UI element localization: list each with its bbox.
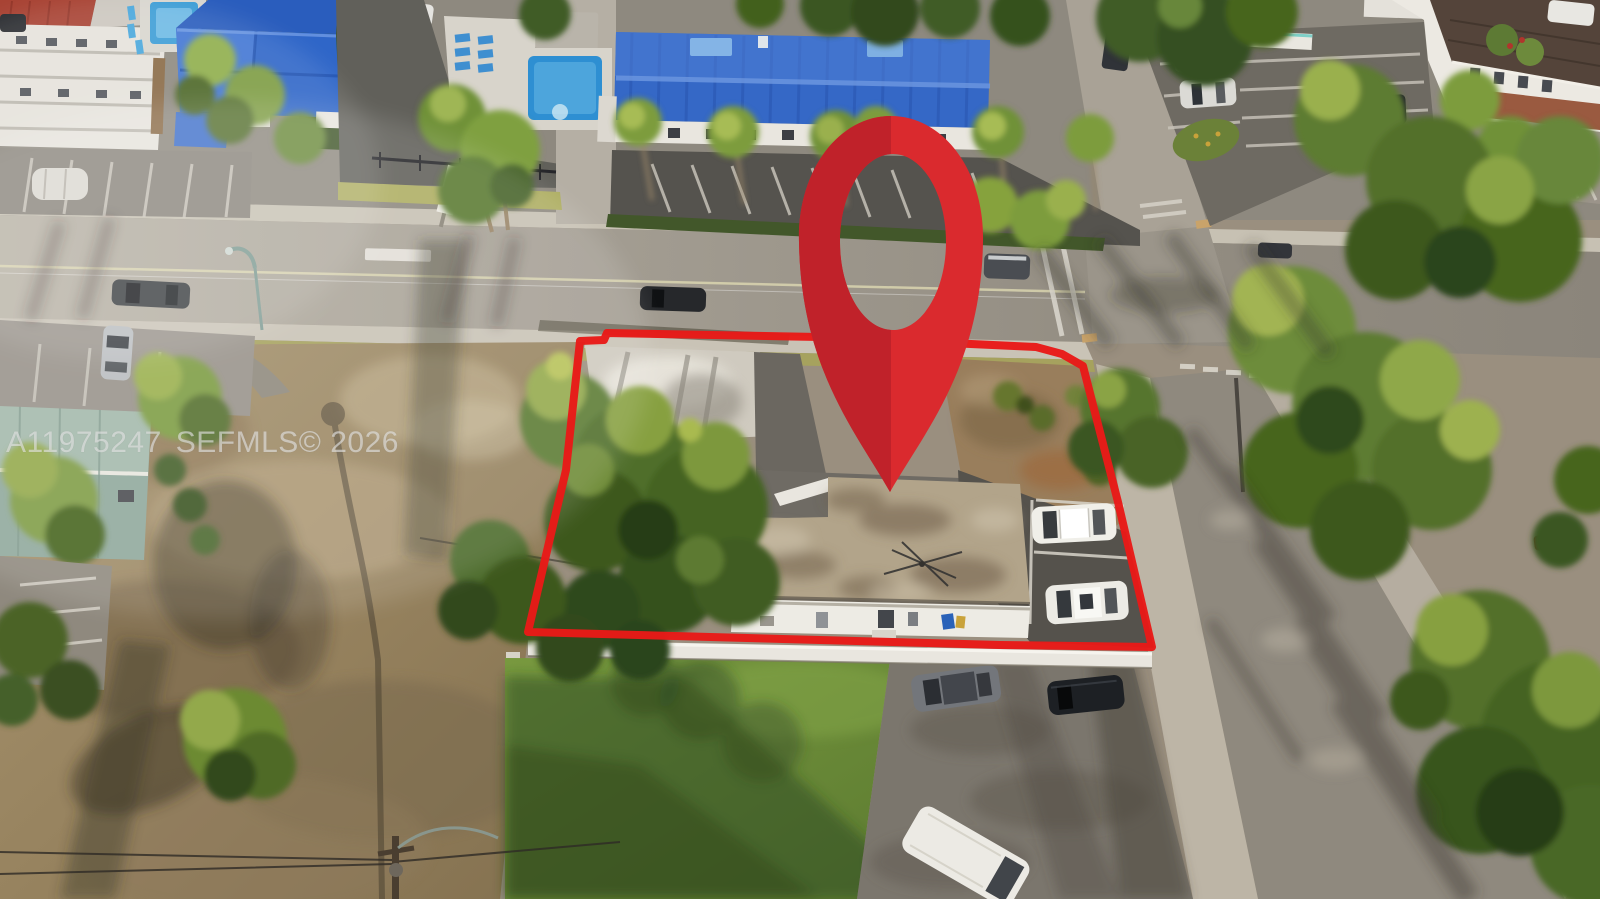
blue-barrel [941, 613, 955, 630]
yellow-barrel [955, 616, 965, 629]
watermark-listing-id: A11975247 [6, 426, 162, 460]
south-grounds [505, 648, 1193, 899]
car-white-a [1031, 503, 1117, 544]
van-gray-intersection [984, 253, 1031, 280]
mls-watermark: A11975247SEFMLS© 2026 [6, 426, 399, 460]
car-white-b [1045, 580, 1130, 625]
watermark-mls-notice: SEFMLS© 2026 [176, 426, 399, 460]
aerial-listing-photo: A11975247SEFMLS© 2026 [0, 0, 1600, 899]
sedan-black-center [640, 286, 707, 312]
roof-vent [690, 38, 732, 56]
